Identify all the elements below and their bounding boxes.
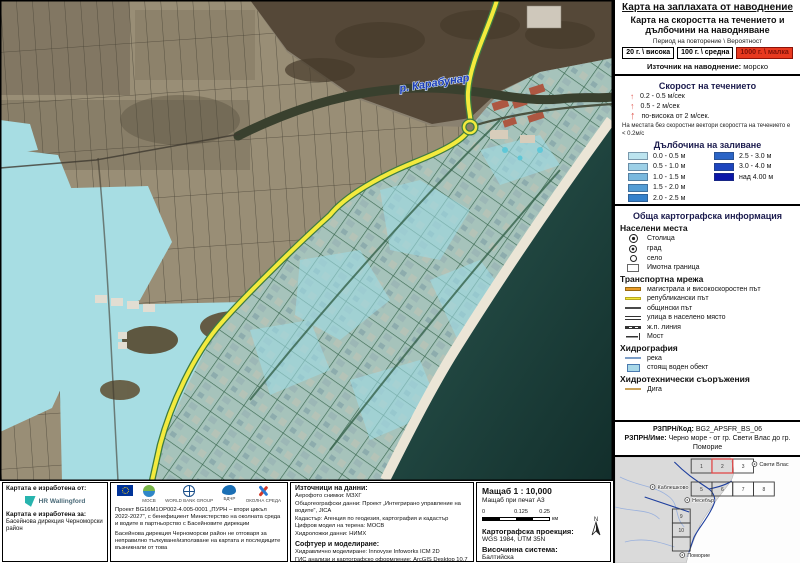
velocity-heading: Скорост на течението bbox=[620, 81, 795, 91]
svg-text:Каблешково: Каблешково bbox=[658, 485, 689, 491]
railway-icon bbox=[625, 326, 641, 329]
depth-swatch bbox=[628, 163, 648, 171]
depth-heading: Дълбочина на заливане bbox=[620, 140, 795, 150]
period-button-100y[interactable]: 100 г. \ средна bbox=[677, 47, 733, 60]
elevation-label: Височинна система: bbox=[482, 545, 605, 554]
depth-item: 1.0 - 1.5 м bbox=[628, 172, 714, 183]
depth-swatch bbox=[628, 173, 648, 181]
velocity-arrow-icon: ↑ bbox=[630, 111, 636, 122]
map-subtitle: Карта на скоростта на течението и дълбоч… bbox=[620, 15, 795, 36]
depth-item: над 4.00 м bbox=[714, 172, 795, 183]
hr-wallingford-logo: HR Wallingford bbox=[6, 496, 104, 507]
period-label: Период на повторение \ Вероятност bbox=[620, 38, 795, 45]
bridge-icon bbox=[626, 333, 640, 340]
scale-box: Мащаб 1 : 10,000 Мащаб при печат А3 0 0.… bbox=[476, 482, 611, 562]
municipal-road-icon bbox=[625, 307, 641, 309]
legend-item: републикански път bbox=[624, 294, 795, 303]
period-selector: 20 г. \ висока 100 г. \ средна 1000 г. \… bbox=[620, 47, 795, 60]
disclaimer-text: Басейнова дирекция Черноморски район не … bbox=[115, 531, 283, 553]
divider bbox=[615, 204, 800, 206]
dike-icon bbox=[625, 388, 641, 390]
project-box: МОСВ WORLD BANK GROUP БДЧР ОКОЛНА СРЕДА … bbox=[110, 482, 288, 562]
sources-heading: Източници на данни: bbox=[295, 485, 469, 492]
depth-item: 0.5 - 1.0 м bbox=[628, 161, 714, 172]
source-item: Аерофото снимки: МЗХГ bbox=[295, 493, 469, 501]
velocity-arrow-icon: ↑ bbox=[630, 93, 634, 101]
village-icon bbox=[630, 255, 637, 262]
credits-box: Картата е изработена от: HR Wallingford … bbox=[2, 482, 108, 562]
scale-bar: 0 0.125 0.25 км bbox=[482, 509, 560, 522]
hydrography-heading: Хидрография bbox=[620, 343, 795, 353]
elevation-value: Балтийска bbox=[482, 554, 605, 561]
source-item: Хидроложки данни: НИМХ bbox=[295, 531, 469, 539]
map-canvas: р. Карабунар bbox=[0, 0, 613, 481]
software-item: ГИС анализи и картографско оформление: A… bbox=[295, 557, 469, 562]
divider bbox=[615, 74, 800, 76]
svg-text:1: 1 bbox=[700, 464, 703, 470]
legend-item: общински път bbox=[624, 304, 795, 313]
source-item: Кадастър: Агенция по геодезия, картограф… bbox=[295, 516, 469, 524]
depth-swatch bbox=[714, 163, 734, 171]
environment-logo-icon: ОКОЛНА СРЕДА bbox=[246, 485, 281, 503]
period-button-1000y[interactable]: 1000 г. \ малка bbox=[736, 47, 792, 60]
scale-value: Мащаб 1 : 10,000 bbox=[482, 486, 605, 496]
hr-wallingford-icon bbox=[25, 496, 36, 507]
velocity-note: На местата без скоростни вектори скорост… bbox=[622, 123, 793, 137]
legend-item: улица в населено място bbox=[624, 313, 795, 322]
transport-heading: Транспортна мрежа bbox=[620, 274, 795, 284]
velocity-item: ↑0.2 - 0.5 м/сек bbox=[630, 92, 795, 101]
velocity-item: ↑0.5 - 2 м/сек bbox=[630, 102, 795, 111]
water-body-icon bbox=[627, 364, 640, 372]
river-line-icon bbox=[625, 357, 641, 359]
svg-text:Несебър: Несебър bbox=[692, 498, 714, 504]
made-for-value: Басейнова дирекция Черноморски район bbox=[6, 519, 104, 534]
made-by-label: Картата е изработена от: bbox=[6, 485, 104, 493]
legend-item: град bbox=[624, 244, 795, 253]
print-scale: Мащаб при печат А3 bbox=[482, 497, 605, 504]
depth-legend: 0.0 - 0.5 м 0.5 - 1.0 м 1.0 - 1.5 м 1.5 … bbox=[620, 151, 795, 204]
svg-text:3: 3 bbox=[742, 464, 745, 470]
depth-swatch bbox=[714, 173, 734, 181]
property-boundary-icon bbox=[627, 264, 639, 272]
town-icon bbox=[629, 245, 637, 253]
legend-item: Мост bbox=[624, 332, 795, 341]
settlements-heading: Населени места bbox=[620, 223, 795, 233]
svg-text:Поморие: Поморие bbox=[687, 553, 710, 559]
projection-label: Картографска проекция: bbox=[482, 527, 605, 536]
depth-item: 1.5 - 2.0 м bbox=[628, 182, 714, 193]
svg-text:7: 7 bbox=[742, 487, 745, 493]
software-item: Хидравлично моделиране: Innovyse Infowor… bbox=[295, 549, 469, 557]
legend-item: ж.п. линия bbox=[624, 323, 795, 332]
legend-item: стоящ воден обект bbox=[624, 363, 795, 372]
svg-text:6: 6 bbox=[721, 487, 724, 493]
republican-road-icon bbox=[625, 297, 641, 300]
depth-swatch bbox=[628, 194, 648, 202]
depth-item: 0.0 - 0.5 м bbox=[628, 151, 714, 162]
svg-text:8: 8 bbox=[763, 487, 766, 493]
legend-panel: Карта на заплахата от наводнение Карта н… bbox=[613, 0, 800, 563]
project-text: Проект BG16M1OP002-4.005-0001 „ПУРН – вт… bbox=[115, 507, 283, 529]
partner-logos: МОСВ WORLD BANK GROUP БДЧР ОКОЛНА СРЕДА bbox=[115, 485, 283, 505]
motorway-line-icon bbox=[625, 287, 641, 291]
eu-flag-icon bbox=[117, 485, 133, 496]
made-for-label: Картата е изработена за: bbox=[6, 511, 104, 519]
svg-text:2: 2 bbox=[721, 464, 724, 470]
flood-hazard-map-sheet: р. Карабунар Картата е изработена от: HR… bbox=[0, 0, 800, 563]
world-bank-logo-icon: WORLD BANK GROUP bbox=[165, 485, 213, 503]
depth-item: 3.0 - 4.0 м bbox=[714, 161, 795, 172]
projection-value: WGS 1984, UTM 35N bbox=[482, 536, 605, 543]
svg-text:Свети Влас: Свети Влас bbox=[759, 462, 788, 468]
hydrotech-heading: Хидротехнически съоръжения bbox=[620, 374, 795, 384]
svg-text:10: 10 bbox=[679, 528, 685, 534]
depth-swatch bbox=[628, 184, 648, 192]
rzprn-box: РЗПРН/Код: BG2_APSFR_BS_06 РЗПРН/Име: Че… bbox=[615, 420, 800, 457]
depth-item: 2.0 - 2.5 м bbox=[628, 193, 714, 204]
flood-source: Източник на наводнение: морско bbox=[620, 62, 795, 71]
svg-text:5: 5 bbox=[700, 487, 703, 493]
footer-strip: Картата е изработена от: HR Wallingford … bbox=[0, 481, 613, 563]
locator-inset-map: 1 2 3 5 6 7 8 9 10 Свети Влас bbox=[615, 457, 800, 563]
satellite-map: р. Карабунар bbox=[0, 0, 613, 481]
carto-heading: Обща картографска информация bbox=[620, 211, 795, 221]
street-icon bbox=[625, 316, 641, 320]
legend-item: Столица bbox=[624, 234, 795, 243]
svg-text:9: 9 bbox=[680, 514, 683, 520]
page-title: Карта на заплахата от наводнение bbox=[620, 2, 795, 13]
legend-item: магистрала и високоскоростен път bbox=[624, 285, 795, 294]
source-item: Цифров модел на терена: МОСВ bbox=[295, 523, 469, 531]
software-heading: Софтуер и моделиране: bbox=[295, 541, 469, 548]
legend-item: река bbox=[624, 354, 795, 363]
depth-swatch bbox=[628, 152, 648, 160]
legend-item: село bbox=[624, 254, 795, 263]
depth-item: 2.5 - 3.0 м bbox=[714, 151, 795, 162]
legend-item: Имотна граница bbox=[624, 263, 795, 272]
bdchr-logo-icon: БДЧР bbox=[222, 485, 236, 501]
data-sources-box: Източници на данни: Аерофото снимки: МЗХ… bbox=[290, 482, 474, 562]
velocity-item: ↑по-висока от 2 м/сек. bbox=[630, 112, 795, 121]
capital-icon bbox=[629, 234, 638, 243]
depth-swatch bbox=[714, 152, 734, 160]
period-button-20y[interactable]: 20 г. \ висока bbox=[622, 47, 674, 60]
north-arrow-icon: N bbox=[589, 515, 603, 542]
mosv-logo-icon: МОСВ bbox=[142, 485, 156, 503]
legend-item: Дига bbox=[624, 385, 795, 394]
source-item: Общогеографски данни: Проект „Интегриран… bbox=[295, 501, 469, 516]
